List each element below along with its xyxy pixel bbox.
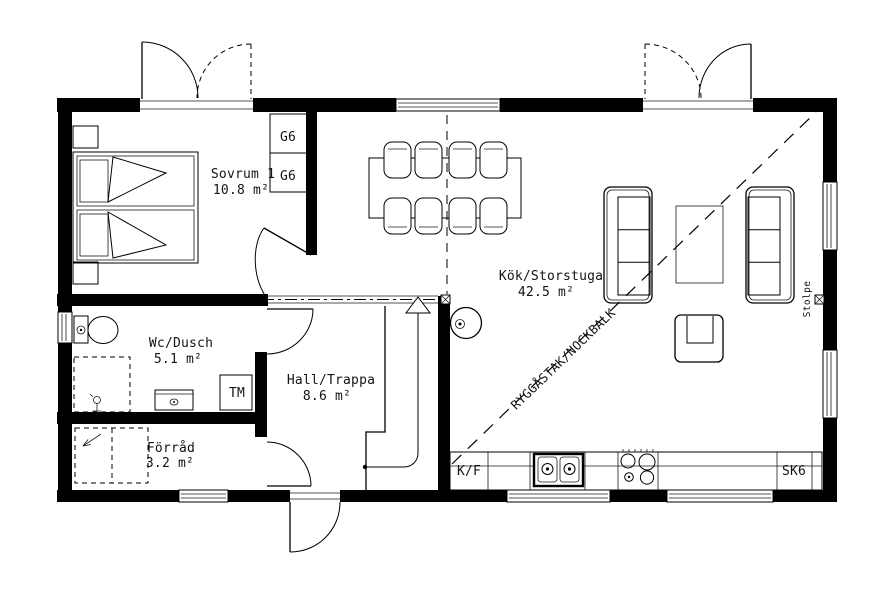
kitchen-counter: K/F SK6 [450,449,822,490]
wardrobe-2-label: G6 [280,169,296,184]
window-right-1 [823,182,837,250]
window-wc [58,312,72,343]
window-kitchen-1 [507,490,610,502]
room-label-sovrum-name: Sovrum 1 [211,167,275,182]
coffee-table [676,206,723,283]
twin-beds [73,152,198,263]
double-door-top-right [643,44,753,109]
sofa-group [604,187,794,362]
ridge-beam-label: RYGGÅSTAK/NOCKBALK [508,305,619,413]
nightstand [73,126,98,148]
dining-chairs [384,142,507,234]
forrad-door [267,442,311,486]
window-forrad [179,490,228,502]
post-label: Stolpe [802,281,813,318]
wardrobe-1-label: G6 [280,130,296,145]
window-kitchen-2 [667,490,773,502]
wardrobes: G6 G6 [270,114,307,192]
room-label-kok-name: Kök/Storstuga [499,269,603,284]
sofa-right [746,187,794,303]
bedroom-furniture: G6 G6 [73,114,307,284]
window-right-2 [823,350,837,418]
double-door-top-left [140,42,253,109]
entrance-door [290,493,340,552]
room-label-sovrum-area: 10.8 m² [213,183,269,198]
room-label-wc-name: Wc/Dusch [149,336,213,351]
window-top [396,99,500,111]
armchair [675,315,723,362]
floor-plan: G6 G6 TM [0,0,896,600]
post-symbol-center [441,295,450,304]
bedroom-door [255,228,311,297]
washing-machine: TM [220,375,252,410]
dining-set [369,142,521,234]
shower [74,357,130,412]
stair [363,306,418,490]
wood-stove [451,308,482,339]
nightstand [73,262,98,284]
floor-plan-drawing: G6 G6 TM [0,0,896,600]
toilet [74,316,118,344]
tall-cabinet-label: SK6 [782,464,806,479]
sink-cabinet [155,390,193,410]
post-symbol-right [815,295,824,304]
room-label-forrad-area: 3.2 m² [146,456,194,471]
sofa-left [604,187,652,303]
room-label-hall-area: 8.6 m² [303,389,351,404]
room-label-wc-area: 5.1 m² [154,352,202,367]
wc-door [267,309,313,354]
room-labels: Sovrum 1 10.8 m² Wc/Dusch 5.1 m² Hall/Tr… [146,167,603,471]
forrad-detail [75,428,148,483]
room-label-hall-name: Hall/Trappa [287,373,375,388]
beam-over-hall [262,296,438,303]
room-label-kok-area: 42.5 m² [518,285,574,300]
fridge-freezer-label: K/F [457,464,481,479]
washing-machine-label: TM [229,386,245,401]
room-label-forrad-name: Förråd [147,441,195,456]
double-sink [534,454,583,486]
stove [621,449,655,484]
